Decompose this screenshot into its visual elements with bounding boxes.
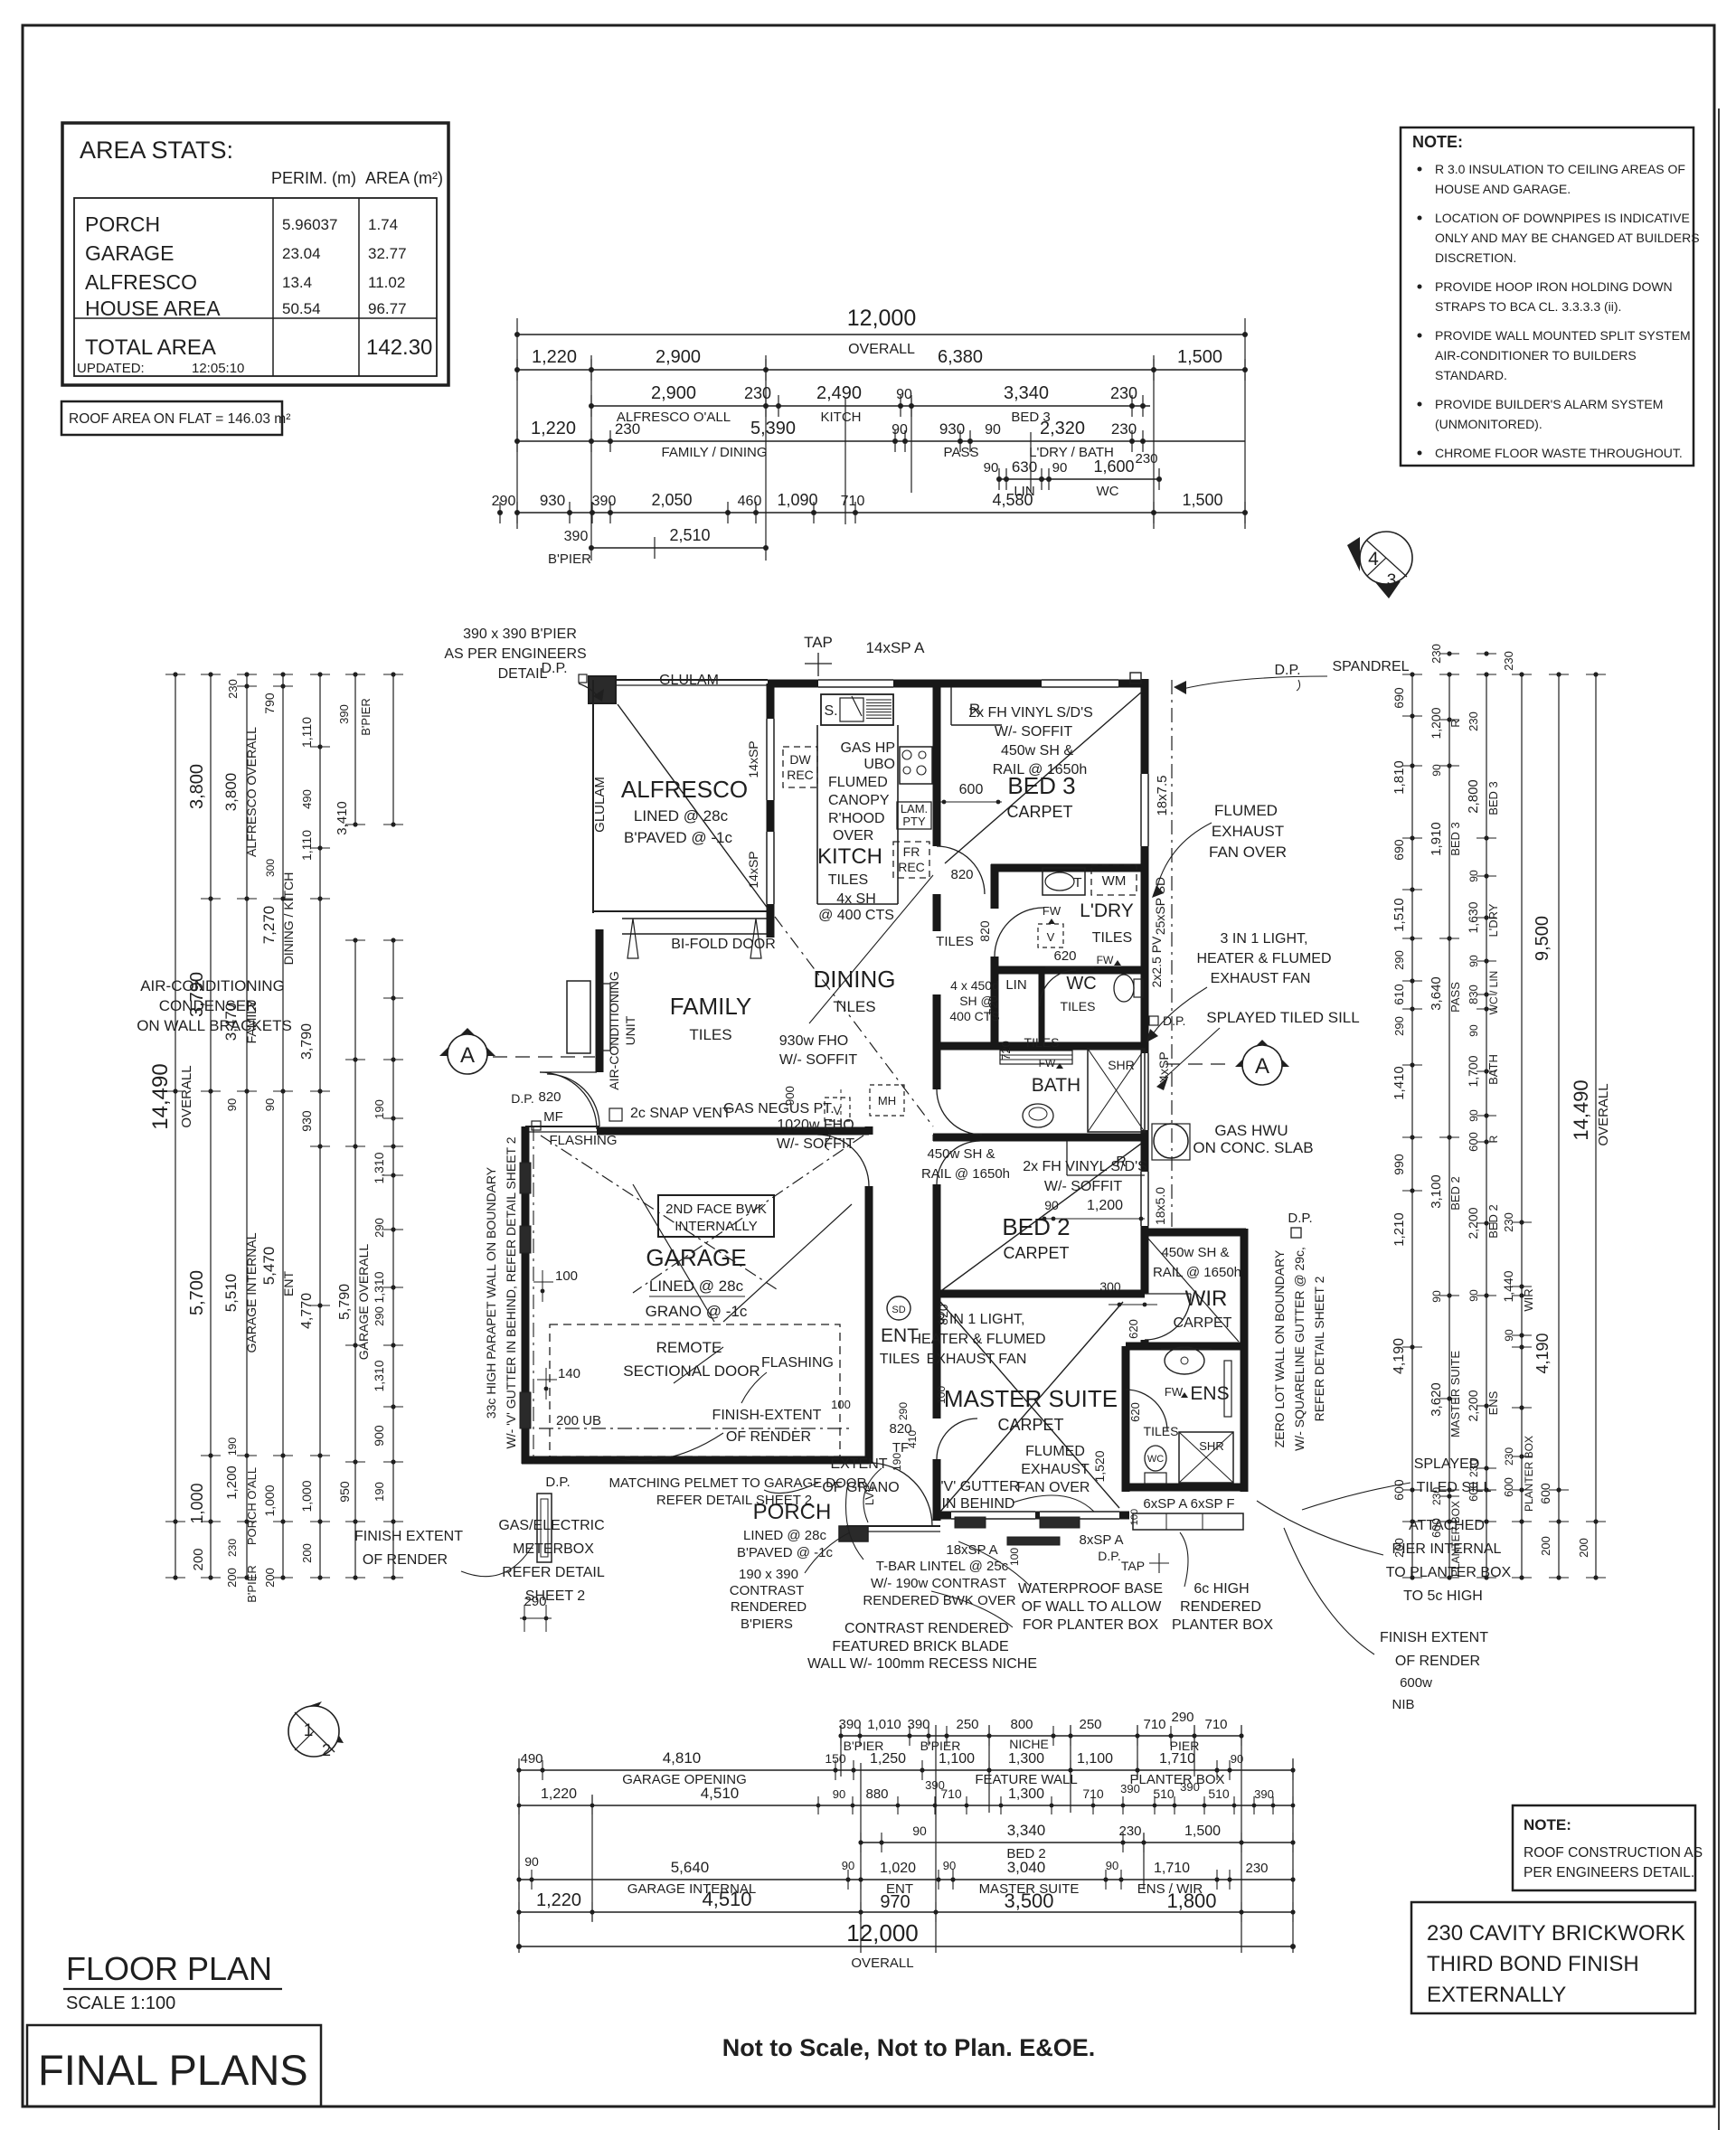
svg-text:2,490: 2,490 (816, 383, 862, 403)
svg-text:STRAPS TO BCA CL. 3.3.3.3 (ii): STRAPS TO BCA CL. 3.3.3.3 (ii). (1435, 299, 1621, 314)
svg-text:FAN OVER: FAN OVER (1017, 1480, 1090, 1495)
svg-text:90: 90 (833, 1787, 845, 1801)
svg-text:WC: WC (1097, 484, 1119, 499)
svg-text:GRANO @ -1c: GRANO @ -1c (646, 1303, 748, 1320)
svg-text:D.P.: D.P. (1288, 1211, 1312, 1226)
svg-text:W/- 190w CONTRAST: W/- 190w CONTRAST (871, 1576, 1006, 1591)
svg-text:B'PIER: B'PIER (548, 551, 591, 567)
svg-text:ALFRESCO: ALFRESCO (85, 270, 197, 294)
svg-text:LINED @ 28c: LINED @ 28c (743, 1528, 826, 1543)
svg-text:PLANTER BOX: PLANTER BOX (1523, 1436, 1535, 1512)
svg-text:CONTRAST RENDERED: CONTRAST RENDERED (844, 1621, 1009, 1636)
svg-text:LINED @ 28c: LINED @ 28c (649, 1277, 744, 1295)
svg-text:14,490: 14,490 (1570, 1079, 1592, 1140)
svg-text:90: 90 (1106, 1859, 1118, 1872)
svg-text:'V' GUTTER: 'V' GUTTER (941, 1479, 1020, 1494)
svg-text:WIR: WIR (1185, 1286, 1228, 1311)
svg-text:200: 200 (1539, 1536, 1552, 1556)
svg-text:KITCH: KITCH (821, 410, 862, 425)
svg-text:250: 250 (1079, 1717, 1101, 1732)
svg-text:B'PIER: B'PIER (245, 1565, 259, 1603)
svg-text:GAS/ELECTRIC: GAS/ELECTRIC (498, 1518, 604, 1533)
svg-text:6c HIGH: 6c HIGH (1193, 1581, 1249, 1597)
svg-text:90: 90 (1467, 870, 1480, 882)
svg-text:EXHAUST FAN: EXHAUST FAN (927, 1352, 1027, 1367)
svg-text:610: 610 (1392, 984, 1406, 1005)
svg-text:6,380: 6,380 (938, 347, 983, 367)
svg-text:MH: MH (878, 1094, 896, 1107)
svg-text:TAP: TAP (804, 634, 833, 651)
svg-text:1,220: 1,220 (532, 347, 577, 367)
svg-text:CARPET: CARPET (1174, 1315, 1232, 1331)
svg-text:820: 820 (977, 920, 992, 942)
svg-text:Not to Scale, Not to Plan. E&O: Not to Scale, Not to Plan. E&OE. (722, 2034, 1096, 2061)
svg-text:KITCH: KITCH (817, 844, 882, 869)
svg-text:800: 800 (1010, 1717, 1033, 1732)
svg-text:CHROME FLOOR WASTE THROUGHOUT.: CHROME FLOOR WASTE THROUGHOUT. (1435, 446, 1683, 460)
svg-text:L'DRY: L'DRY (1486, 903, 1500, 937)
svg-text:290: 290 (1392, 1016, 1406, 1036)
svg-text:WALL W/- 100mm RECESS NICHE: WALL W/- 100mm RECESS NICHE (807, 1656, 1037, 1672)
svg-text:1,000: 1,000 (188, 1483, 206, 1523)
svg-text:1,100: 1,100 (939, 1751, 975, 1767)
svg-text:1,710: 1,710 (1154, 1861, 1190, 1876)
svg-text:300: 300 (264, 859, 277, 877)
svg-text:1,220: 1,220 (531, 419, 576, 438)
svg-text:25xSP SD: 25xSP SD (1153, 877, 1167, 935)
svg-text:820: 820 (889, 1421, 911, 1437)
svg-text:L'DRY: L'DRY (1080, 900, 1134, 921)
svg-text:190: 190 (373, 1482, 386, 1502)
svg-text:230: 230 (1118, 1824, 1141, 1839)
svg-text:2,900: 2,900 (656, 347, 701, 367)
svg-text:140: 140 (558, 1366, 580, 1381)
svg-text:UBO: UBO (863, 757, 895, 772)
svg-text:5,640: 5,640 (671, 1859, 710, 1876)
svg-text:1,020: 1,020 (880, 1861, 916, 1876)
svg-text:TILES: TILES (689, 1026, 731, 1043)
svg-text:EXTERNALLY: EXTERNALLY (1427, 1983, 1566, 2007)
svg-text:PERIM. (m): PERIM. (m) (271, 169, 356, 187)
svg-text:710: 710 (1204, 1717, 1227, 1732)
svg-text:790: 790 (262, 693, 277, 714)
svg-text:SPANDREL: SPANDREL (1332, 659, 1409, 674)
svg-text:NOTE:: NOTE: (1524, 1816, 1571, 1833)
svg-text:2,900: 2,900 (651, 383, 696, 403)
svg-text:OVER: OVER (833, 828, 873, 844)
svg-text:FW: FW (1039, 1057, 1056, 1070)
svg-text:REC: REC (898, 860, 925, 874)
svg-text:1,210: 1,210 (1392, 1212, 1407, 1247)
svg-text:90: 90 (1430, 1290, 1443, 1303)
svg-text:90: 90 (1467, 1109, 1480, 1122)
svg-text:1,810: 1,810 (1392, 760, 1407, 795)
svg-text:R: R (1116, 1155, 1127, 1170)
svg-text:UNIT: UNIT (623, 1015, 637, 1045)
svg-text:13.4: 13.4 (282, 274, 312, 291)
svg-text:MASTER SUITE: MASTER SUITE (944, 1385, 1118, 1412)
svg-text:90: 90 (896, 387, 912, 402)
svg-text:2x FH VINYL S/D'S: 2x FH VINYL S/D'S (1023, 1159, 1147, 1174)
svg-text:1: 1 (304, 1721, 314, 1740)
svg-text:PASS: PASS (1448, 982, 1462, 1013)
svg-text:1,500: 1,500 (1182, 491, 1222, 509)
svg-text:METERBOX: METERBOX (513, 1541, 594, 1557)
svg-text:OVERALL: OVERALL (848, 342, 915, 357)
svg-text:ENS: ENS (1486, 1390, 1500, 1415)
svg-text:OF RENDER: OF RENDER (363, 1552, 448, 1568)
svg-text:90: 90 (1467, 1024, 1480, 1037)
svg-text:SD: SD (892, 1305, 905, 1315)
svg-text:3,640: 3,640 (1429, 976, 1444, 1011)
svg-text:D.P.: D.P. (545, 1475, 570, 1490)
svg-text:A: A (1255, 1054, 1269, 1079)
svg-text:3,620: 3,620 (1429, 1382, 1444, 1417)
svg-text:EXHAUST: EXHAUST (1212, 823, 1284, 840)
svg-text:FW: FW (1097, 954, 1114, 966)
svg-text:1,000: 1,000 (262, 1484, 277, 1516)
svg-text:3,800: 3,800 (222, 773, 240, 812)
svg-text:PORCH O'ALL: PORCH O'ALL (245, 1467, 259, 1545)
svg-text:230: 230 (226, 1539, 239, 1557)
svg-text:2x2.5 PV: 2x2.5 PV (1149, 936, 1164, 987)
svg-text:FW: FW (1165, 1385, 1184, 1399)
svg-text:930w FHO: 930w FHO (779, 1033, 848, 1049)
svg-text:290: 290 (1171, 1710, 1193, 1725)
svg-text:TILES: TILES (1092, 930, 1132, 946)
svg-text:ENS: ENS (1190, 1383, 1229, 1404)
svg-text:1,410: 1,410 (1392, 1066, 1407, 1100)
svg-text:230: 230 (226, 679, 240, 699)
svg-text:GARAGE OVERALL: GARAGE OVERALL (356, 1244, 371, 1361)
svg-text:1,200: 1,200 (224, 1466, 240, 1500)
svg-text:90: 90 (842, 1859, 854, 1872)
svg-text:3,100: 3,100 (1429, 1174, 1444, 1209)
svg-text:720: 720 (999, 1041, 1013, 1060)
svg-text:50.54: 50.54 (282, 300, 321, 317)
svg-text:1,440: 1,440 (1501, 1270, 1515, 1302)
svg-text:W/- SOFFIT: W/- SOFFIT (1044, 1179, 1122, 1194)
svg-text:RAIL @ 1650h: RAIL @ 1650h (993, 762, 1088, 778)
svg-text:FINISH EXTENT: FINISH EXTENT (354, 1529, 463, 1544)
svg-text:W/- SOFFIT: W/- SOFFIT (779, 1052, 857, 1068)
svg-text:GAS HWU: GAS HWU (1214, 1122, 1288, 1139)
svg-text:OVERALL: OVERALL (851, 1956, 913, 1971)
svg-text:W/- SOFFIT: W/- SOFFIT (995, 724, 1072, 740)
svg-text:710: 710 (1143, 1717, 1165, 1732)
svg-text:ENT: ENT (281, 1271, 296, 1296)
svg-text:TF: TF (892, 1440, 909, 1456)
svg-text:R'HOOD: R'HOOD (828, 811, 885, 826)
svg-text:AREA (m²): AREA (m²) (365, 169, 443, 187)
svg-text:1,800: 1,800 (1166, 1890, 1216, 1912)
svg-text:OVERALL: OVERALL (179, 1065, 194, 1127)
svg-text:WC: WC (1147, 1454, 1164, 1465)
svg-text:1,600: 1,600 (1093, 457, 1134, 476)
svg-text:R 3.0 INSULATION TO CEILING AR: R 3.0 INSULATION TO CEILING AREAS OF (1435, 162, 1685, 176)
svg-text:200: 200 (263, 1568, 277, 1588)
svg-text:BI-FOLD DOOR: BI-FOLD DOOR (671, 937, 776, 952)
svg-text:TILED SILL: TILED SILL (1417, 1480, 1492, 1495)
svg-text:3,040: 3,040 (1007, 1859, 1046, 1876)
svg-text:200: 200 (225, 1568, 239, 1588)
svg-text:2x FH VINYL S/D'S: 2x FH VINYL S/D'S (968, 705, 1093, 721)
svg-text:BED 3: BED 3 (1448, 822, 1462, 856)
svg-text:150: 150 (825, 1751, 846, 1766)
svg-text:32.77: 32.77 (368, 245, 407, 262)
svg-text:100: 100 (831, 1398, 851, 1411)
svg-text:9,500: 9,500 (1533, 916, 1552, 961)
svg-text:620: 620 (1128, 1402, 1142, 1422)
svg-text:OF RENDER: OF RENDER (726, 1429, 811, 1445)
svg-text:90: 90 (524, 1854, 539, 1869)
svg-text:AIR-CONDITIONER TO BUILDERS: AIR-CONDITIONER TO BUILDERS (1435, 348, 1637, 363)
svg-text:ALFRESCO: ALFRESCO (621, 776, 748, 803)
svg-text:100: 100 (1129, 1509, 1140, 1525)
svg-text:4,190: 4,190 (1533, 1333, 1552, 1373)
svg-text:200 UB: 200 UB (556, 1413, 601, 1428)
svg-text:TILES: TILES (833, 998, 875, 1015)
svg-text:90: 90 (1231, 1752, 1243, 1766)
svg-text:90: 90 (1052, 460, 1068, 476)
svg-text:HOUSE AREA: HOUSE AREA (85, 297, 221, 320)
svg-text:MF: MF (543, 1109, 563, 1125)
svg-text:B'PAVED @ -1c: B'PAVED @ -1c (737, 1545, 833, 1560)
svg-text:620: 620 (1127, 1319, 1140, 1339)
svg-text:600w: 600w (1400, 1675, 1432, 1691)
svg-text:5,790: 5,790 (337, 1284, 353, 1320)
svg-text:GLULAM: GLULAM (592, 777, 608, 833)
svg-text:D.P.: D.P. (511, 1091, 533, 1106)
svg-text:710: 710 (1082, 1786, 1104, 1801)
svg-text:1,310: 1,310 (372, 1360, 386, 1391)
svg-text:18x7.5: 18x7.5 (1155, 775, 1170, 815)
svg-text:600: 600 (1538, 1483, 1552, 1504)
svg-text:ZERO LOT WALL ON BOUNDARY: ZERO LOT WALL ON BOUNDARY (1272, 1249, 1287, 1447)
svg-text:290: 290 (1392, 950, 1406, 970)
svg-text:@ 400 CTS: @ 400 CTS (818, 908, 894, 923)
svg-text:12,000: 12,000 (847, 306, 916, 331)
svg-text:BED 2: BED 2 (1448, 1176, 1462, 1211)
svg-text:GARAGE: GARAGE (85, 241, 174, 265)
svg-text:1,310: 1,310 (372, 1271, 386, 1303)
svg-text:ONLY AND MAY BE CHANGED AT BUI: ONLY AND MAY BE CHANGED AT BUILDERS (1435, 231, 1700, 245)
svg-text:DW: DW (789, 752, 811, 767)
svg-text:1,700: 1,700 (1466, 1055, 1480, 1087)
svg-text:90: 90 (892, 422, 908, 438)
svg-text:100: 100 (935, 1386, 948, 1404)
svg-text:2,320: 2,320 (1040, 419, 1085, 438)
svg-text:11.02: 11.02 (368, 274, 405, 291)
svg-text:PER ENGINEERS DETAIL.: PER ENGINEERS DETAIL. (1524, 1865, 1694, 1880)
svg-text:3,340: 3,340 (1007, 1822, 1046, 1839)
svg-text:1,220: 1,220 (541, 1786, 577, 1802)
svg-text:1,010: 1,010 (867, 1717, 901, 1732)
svg-text:3,500: 3,500 (1004, 1890, 1053, 1912)
svg-text:PROVIDE BUILDER'S ALARM SYSTEM: PROVIDE BUILDER'S ALARM SYSTEM (1435, 397, 1663, 411)
svg-text:INTERNALLY: INTERNALLY (675, 1219, 757, 1234)
svg-text:200: 200 (191, 1548, 206, 1570)
svg-text:290: 290 (373, 1218, 386, 1238)
svg-text:690: 690 (1392, 687, 1406, 709)
svg-text:390: 390 (592, 494, 617, 509)
svg-text:190 x 390: 190 x 390 (739, 1567, 798, 1582)
svg-text:2,200: 2,200 (1466, 1207, 1480, 1239)
svg-text:SPLAYED: SPLAYED (1414, 1456, 1480, 1472)
svg-text:142.30: 142.30 (366, 335, 432, 360)
svg-text:4,510: 4,510 (702, 1888, 751, 1910)
svg-text:4xSP: 4xSP (1156, 1051, 1171, 1081)
svg-text:23.04: 23.04 (282, 245, 321, 262)
svg-text:3: 3 (1387, 571, 1397, 590)
svg-text:TILES: TILES (828, 872, 868, 888)
svg-text:ON CONC. SLAB: ON CONC. SLAB (1193, 1139, 1313, 1156)
svg-text:1,110: 1,110 (299, 830, 314, 861)
svg-text:OVERALL: OVERALL (1596, 1083, 1611, 1145)
svg-text:390: 390 (907, 1717, 929, 1732)
svg-text:B'PIER: B'PIER (359, 698, 373, 736)
svg-text:930: 930 (939, 420, 965, 438)
svg-text:1,200: 1,200 (1087, 1198, 1123, 1213)
svg-text:4,190: 4,190 (1392, 1338, 1407, 1374)
svg-text:1,710: 1,710 (1159, 1751, 1195, 1767)
svg-text:200: 200 (300, 1543, 314, 1563)
svg-text:90: 90 (1467, 1289, 1480, 1302)
svg-text:CARPET: CARPET (1003, 1244, 1069, 1262)
svg-text:AS PER ENGINEERS: AS PER ENGINEERS (444, 646, 586, 662)
svg-text:FOR PLANTER BOX: FOR PLANTER BOX (1023, 1617, 1159, 1633)
svg-text:ENT: ENT (881, 1325, 919, 1346)
svg-text:D.P.: D.P. (1274, 663, 1300, 678)
svg-text:GLULAM: GLULAM (659, 673, 719, 688)
svg-text:5,470: 5,470 (260, 1247, 278, 1286)
svg-text:190: 190 (226, 1437, 239, 1456)
svg-text:BATH: BATH (1032, 1075, 1080, 1096)
svg-text:RENDERED: RENDERED (1180, 1599, 1261, 1615)
svg-text:1,000: 1,000 (299, 1480, 314, 1512)
svg-text:390: 390 (337, 704, 351, 724)
svg-text:FEATURE WALL: FEATURE WALL (975, 1772, 1077, 1787)
svg-text:990: 990 (1392, 1154, 1406, 1175)
svg-text:230: 230 (1467, 712, 1480, 731)
svg-text:230: 230 (744, 384, 771, 402)
svg-text:PORCH: PORCH (753, 1500, 832, 1524)
svg-text:STANDARD.: STANDARD. (1435, 368, 1507, 382)
svg-text:390: 390 (1180, 1780, 1200, 1794)
svg-text:490: 490 (520, 1751, 542, 1767)
svg-text:14,490: 14,490 (148, 1063, 173, 1129)
svg-text:WC: WC (1066, 974, 1096, 994)
svg-text:CARPET: CARPET (1006, 803, 1072, 821)
svg-text:RAIL @ 1650h: RAIL @ 1650h (1153, 1265, 1241, 1280)
svg-text:820: 820 (950, 867, 973, 882)
svg-text:PASS: PASS (944, 445, 979, 460)
svg-text:DISCRETION.: DISCRETION. (1435, 250, 1516, 265)
svg-text:1,910: 1,910 (1429, 822, 1444, 856)
svg-text:390: 390 (564, 529, 589, 544)
svg-text:PIER INTERNAL: PIER INTERNAL (1392, 1541, 1502, 1557)
svg-text:AREA STATS:: AREA STATS: (80, 137, 233, 164)
svg-text:450w SH &: 450w SH & (1161, 1245, 1229, 1260)
svg-text:ROOF AREA ON FLAT = 146.03 m²: ROOF AREA ON FLAT = 146.03 m² (69, 411, 290, 427)
svg-text:W/- SQUARELINE GUTTER @ 29c,: W/- SQUARELINE GUTTER @ 29c, (1292, 1247, 1307, 1451)
svg-text:90: 90 (1467, 955, 1480, 967)
svg-text:1,510: 1,510 (1392, 898, 1407, 932)
svg-text:12:05:10: 12:05:10 (192, 361, 244, 376)
svg-text:WM: WM (1102, 873, 1127, 889)
svg-text:OF RENDER: OF RENDER (1395, 1654, 1480, 1669)
svg-text:GARAGE: GARAGE (646, 1244, 746, 1271)
svg-text:880: 880 (865, 1786, 888, 1802)
svg-text:RENDERED: RENDERED (731, 1599, 807, 1615)
svg-text:2: 2 (322, 1741, 331, 1759)
svg-text:ON WALL BRACKETS: ON WALL BRACKETS (137, 1017, 292, 1034)
svg-text:390: 390 (838, 1717, 861, 1732)
svg-text:SHR: SHR (1199, 1439, 1223, 1453)
svg-text:EXTENT: EXTENT (830, 1456, 887, 1472)
svg-text:90: 90 (984, 460, 999, 476)
svg-text:(UNMONITORED).: (UNMONITORED). (1435, 417, 1543, 431)
svg-text:200: 200 (1577, 1538, 1590, 1558)
svg-text:600: 600 (1502, 1477, 1515, 1497)
svg-text:B'PAVED @ -1c: B'PAVED @ -1c (624, 829, 733, 846)
svg-text:W/- 'V' GUTTER IN BEHIND, REFE: W/- 'V' GUTTER IN BEHIND, REFER DETAIL S… (504, 1136, 518, 1448)
svg-text:970: 970 (880, 1892, 910, 1912)
svg-text:FEATURED BRICK BLADE: FEATURED BRICK BLADE (832, 1639, 1008, 1654)
svg-text:WATERPROOF BASE: WATERPROOF BASE (1018, 1581, 1163, 1597)
svg-text:290: 290 (492, 494, 516, 509)
svg-text:TAP: TAP (1121, 1559, 1145, 1573)
svg-text:900: 900 (372, 1425, 386, 1447)
svg-text:230: 230 (1245, 1861, 1268, 1876)
svg-text:230: 230 (1111, 420, 1137, 438)
svg-text:90: 90 (263, 1098, 277, 1111)
svg-text:ATTACHED: ATTACHED (1409, 1518, 1485, 1533)
svg-text:NOTE:: NOTE: (1412, 133, 1463, 151)
svg-text:FLOOR PLAN: FLOOR PLAN (66, 1950, 272, 1987)
svg-text:FLUMED: FLUMED (1214, 802, 1278, 819)
svg-text:EXHAUST FAN: EXHAUST FAN (1211, 971, 1311, 986)
svg-text:250: 250 (956, 1717, 978, 1732)
svg-text:WIR: WIR (1522, 1288, 1535, 1311)
svg-text:460: 460 (738, 494, 762, 509)
svg-text:D.P.: D.P. (1098, 1549, 1120, 1563)
svg-text:1,300: 1,300 (1008, 1786, 1044, 1802)
svg-text:FINISH EXTENT: FINISH EXTENT (1380, 1630, 1488, 1645)
svg-text:230: 230 (1135, 451, 1157, 467)
svg-text:600: 600 (1467, 1132, 1480, 1152)
svg-text:4,770: 4,770 (299, 1293, 315, 1329)
svg-text:GARAGE INTERNAL: GARAGE INTERNAL (244, 1232, 259, 1352)
svg-text:8xSP A: 8xSP A (1080, 1532, 1124, 1548)
svg-text:FW: FW (1043, 904, 1061, 918)
svg-text:TILES: TILES (880, 1352, 920, 1367)
svg-text:NIB: NIB (1392, 1697, 1414, 1712)
svg-text:950: 950 (337, 1481, 352, 1503)
svg-text:230 CAVITY BRICKWORK: 230 CAVITY BRICKWORK (1427, 1921, 1685, 1946)
svg-text:90: 90 (225, 1098, 239, 1111)
svg-text:620: 620 (1053, 948, 1076, 964)
svg-text:IN BEHIND: IN BEHIND (942, 1496, 1015, 1512)
svg-text:1,090: 1,090 (777, 491, 817, 509)
svg-text:96.77: 96.77 (368, 300, 407, 317)
svg-text:490: 490 (300, 789, 314, 809)
svg-text:4,510: 4,510 (701, 1785, 740, 1802)
svg-text:BED 3: BED 3 (1486, 781, 1500, 815)
svg-text:5,510: 5,510 (222, 1274, 240, 1313)
svg-text:290: 290 (897, 1402, 910, 1420)
svg-text:4,810: 4,810 (663, 1749, 702, 1767)
